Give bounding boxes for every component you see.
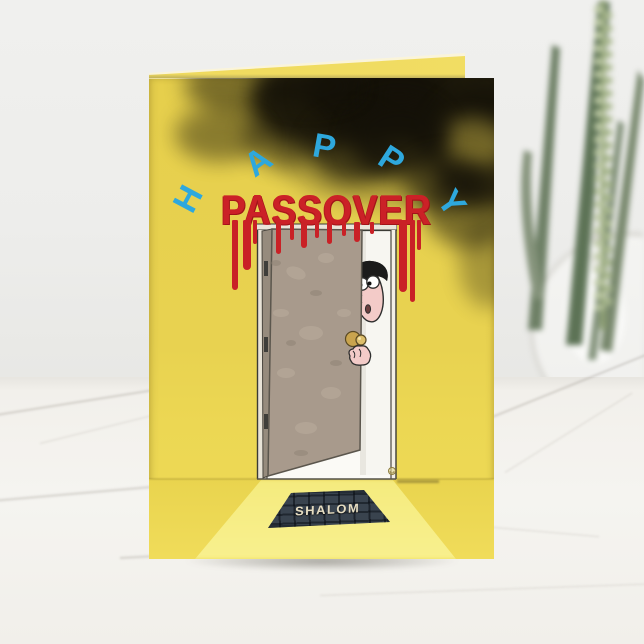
blood-drip — [410, 220, 415, 302]
blood-drip — [417, 220, 421, 250]
greeting-card-product-photo: H A P P Y PASSOVER SHALOM — [0, 0, 644, 644]
plant-illustration — [500, 0, 644, 392]
blood-drip — [276, 222, 281, 254]
blood-drip — [342, 222, 346, 236]
blood-drip — [327, 222, 332, 244]
blood-drip — [301, 222, 307, 248]
vase-plant-photo — [500, 0, 644, 392]
blood-drip — [243, 220, 251, 270]
blood-drip — [354, 222, 360, 242]
greeting-card-front: H A P P Y PASSOVER SHALOM — [149, 78, 494, 559]
blood-drip — [315, 222, 319, 238]
marble-vein — [320, 583, 644, 596]
blood-drip — [290, 222, 294, 240]
blood-drip — [399, 220, 407, 292]
blood-drip — [253, 220, 257, 244]
blood-drip — [370, 222, 374, 234]
blood-drip — [232, 220, 238, 290]
blood-drips — [149, 78, 494, 559]
